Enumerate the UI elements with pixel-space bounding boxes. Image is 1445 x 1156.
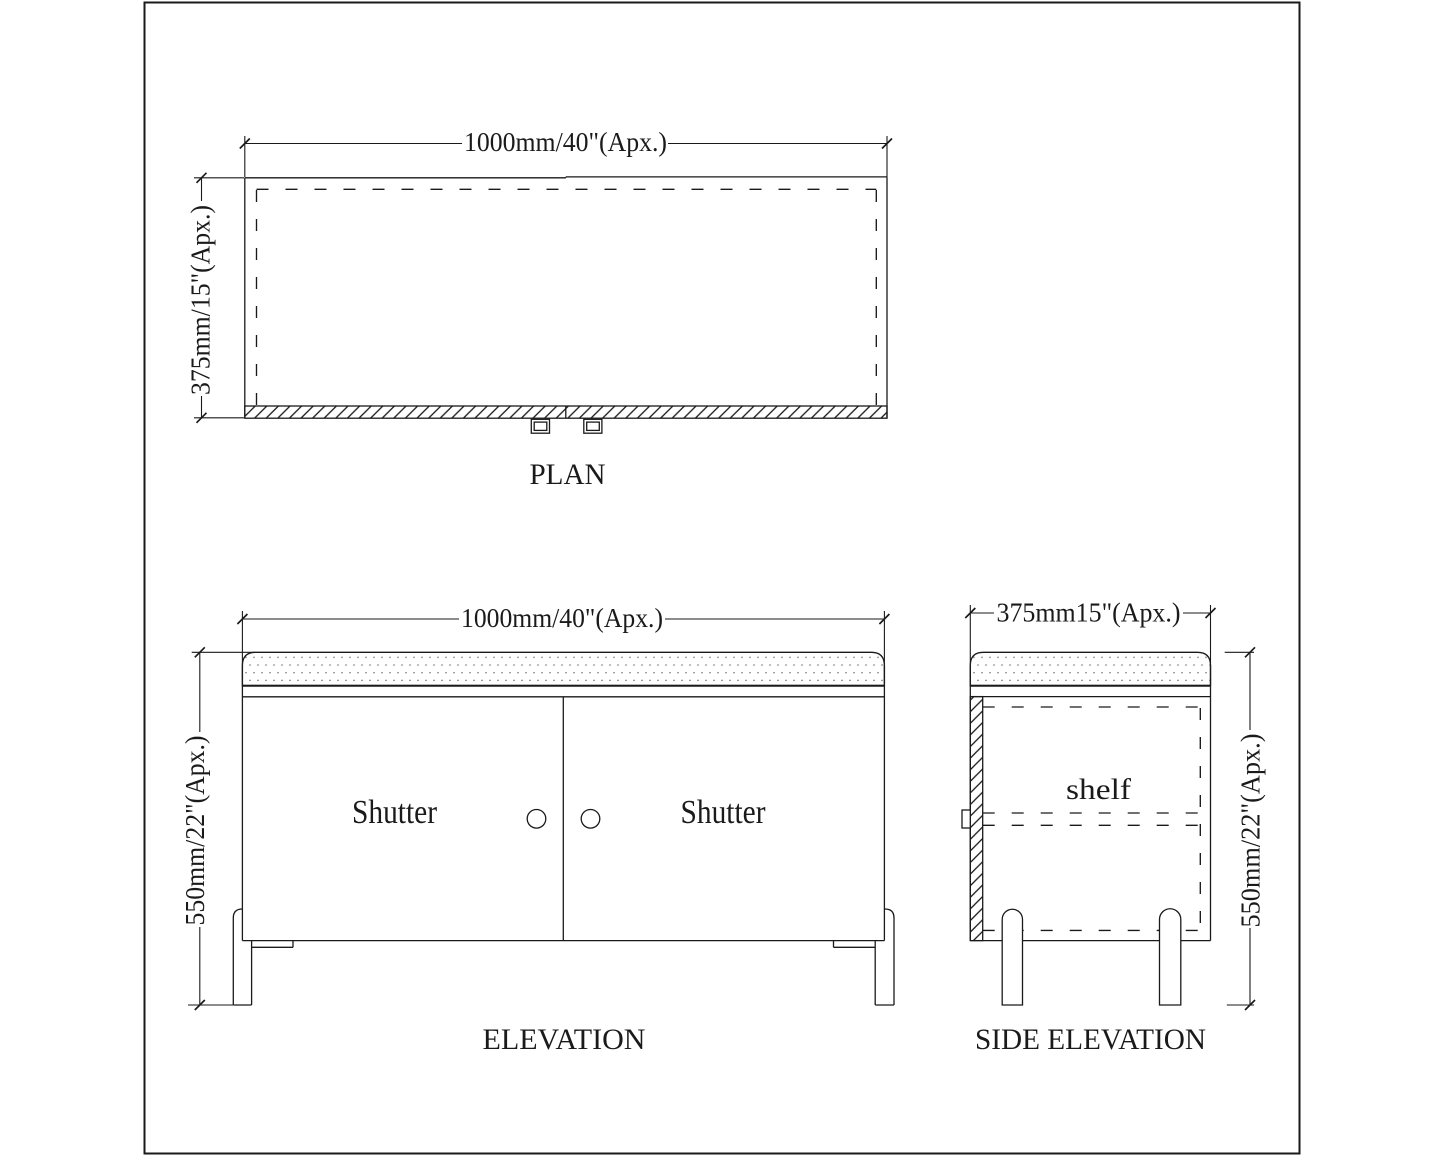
svg-text:1000mm/40"(Apx.): 1000mm/40"(Apx.) — [461, 603, 663, 633]
svg-text:PLAN: PLAN — [530, 458, 606, 491]
svg-text:1000mm/40"(Apx.): 1000mm/40"(Apx.) — [464, 127, 667, 157]
svg-text:shelf: shelf — [1066, 773, 1131, 806]
svg-text:SIDE ELEVATION: SIDE ELEVATION — [975, 1023, 1206, 1056]
svg-text:375mm15"(Apx.): 375mm15"(Apx.) — [997, 598, 1181, 628]
svg-text:ELEVATION: ELEVATION — [483, 1023, 646, 1056]
svg-text:Shutter: Shutter — [681, 794, 767, 831]
svg-text:550mm/22"(Apx.): 550mm/22"(Apx.) — [180, 736, 210, 926]
svg-text:375mm/15"(Apx.): 375mm/15"(Apx.) — [186, 205, 216, 395]
svg-text:550mm/22"(Apx.): 550mm/22"(Apx.) — [1236, 734, 1266, 928]
svg-text:Shutter: Shutter — [352, 794, 438, 831]
